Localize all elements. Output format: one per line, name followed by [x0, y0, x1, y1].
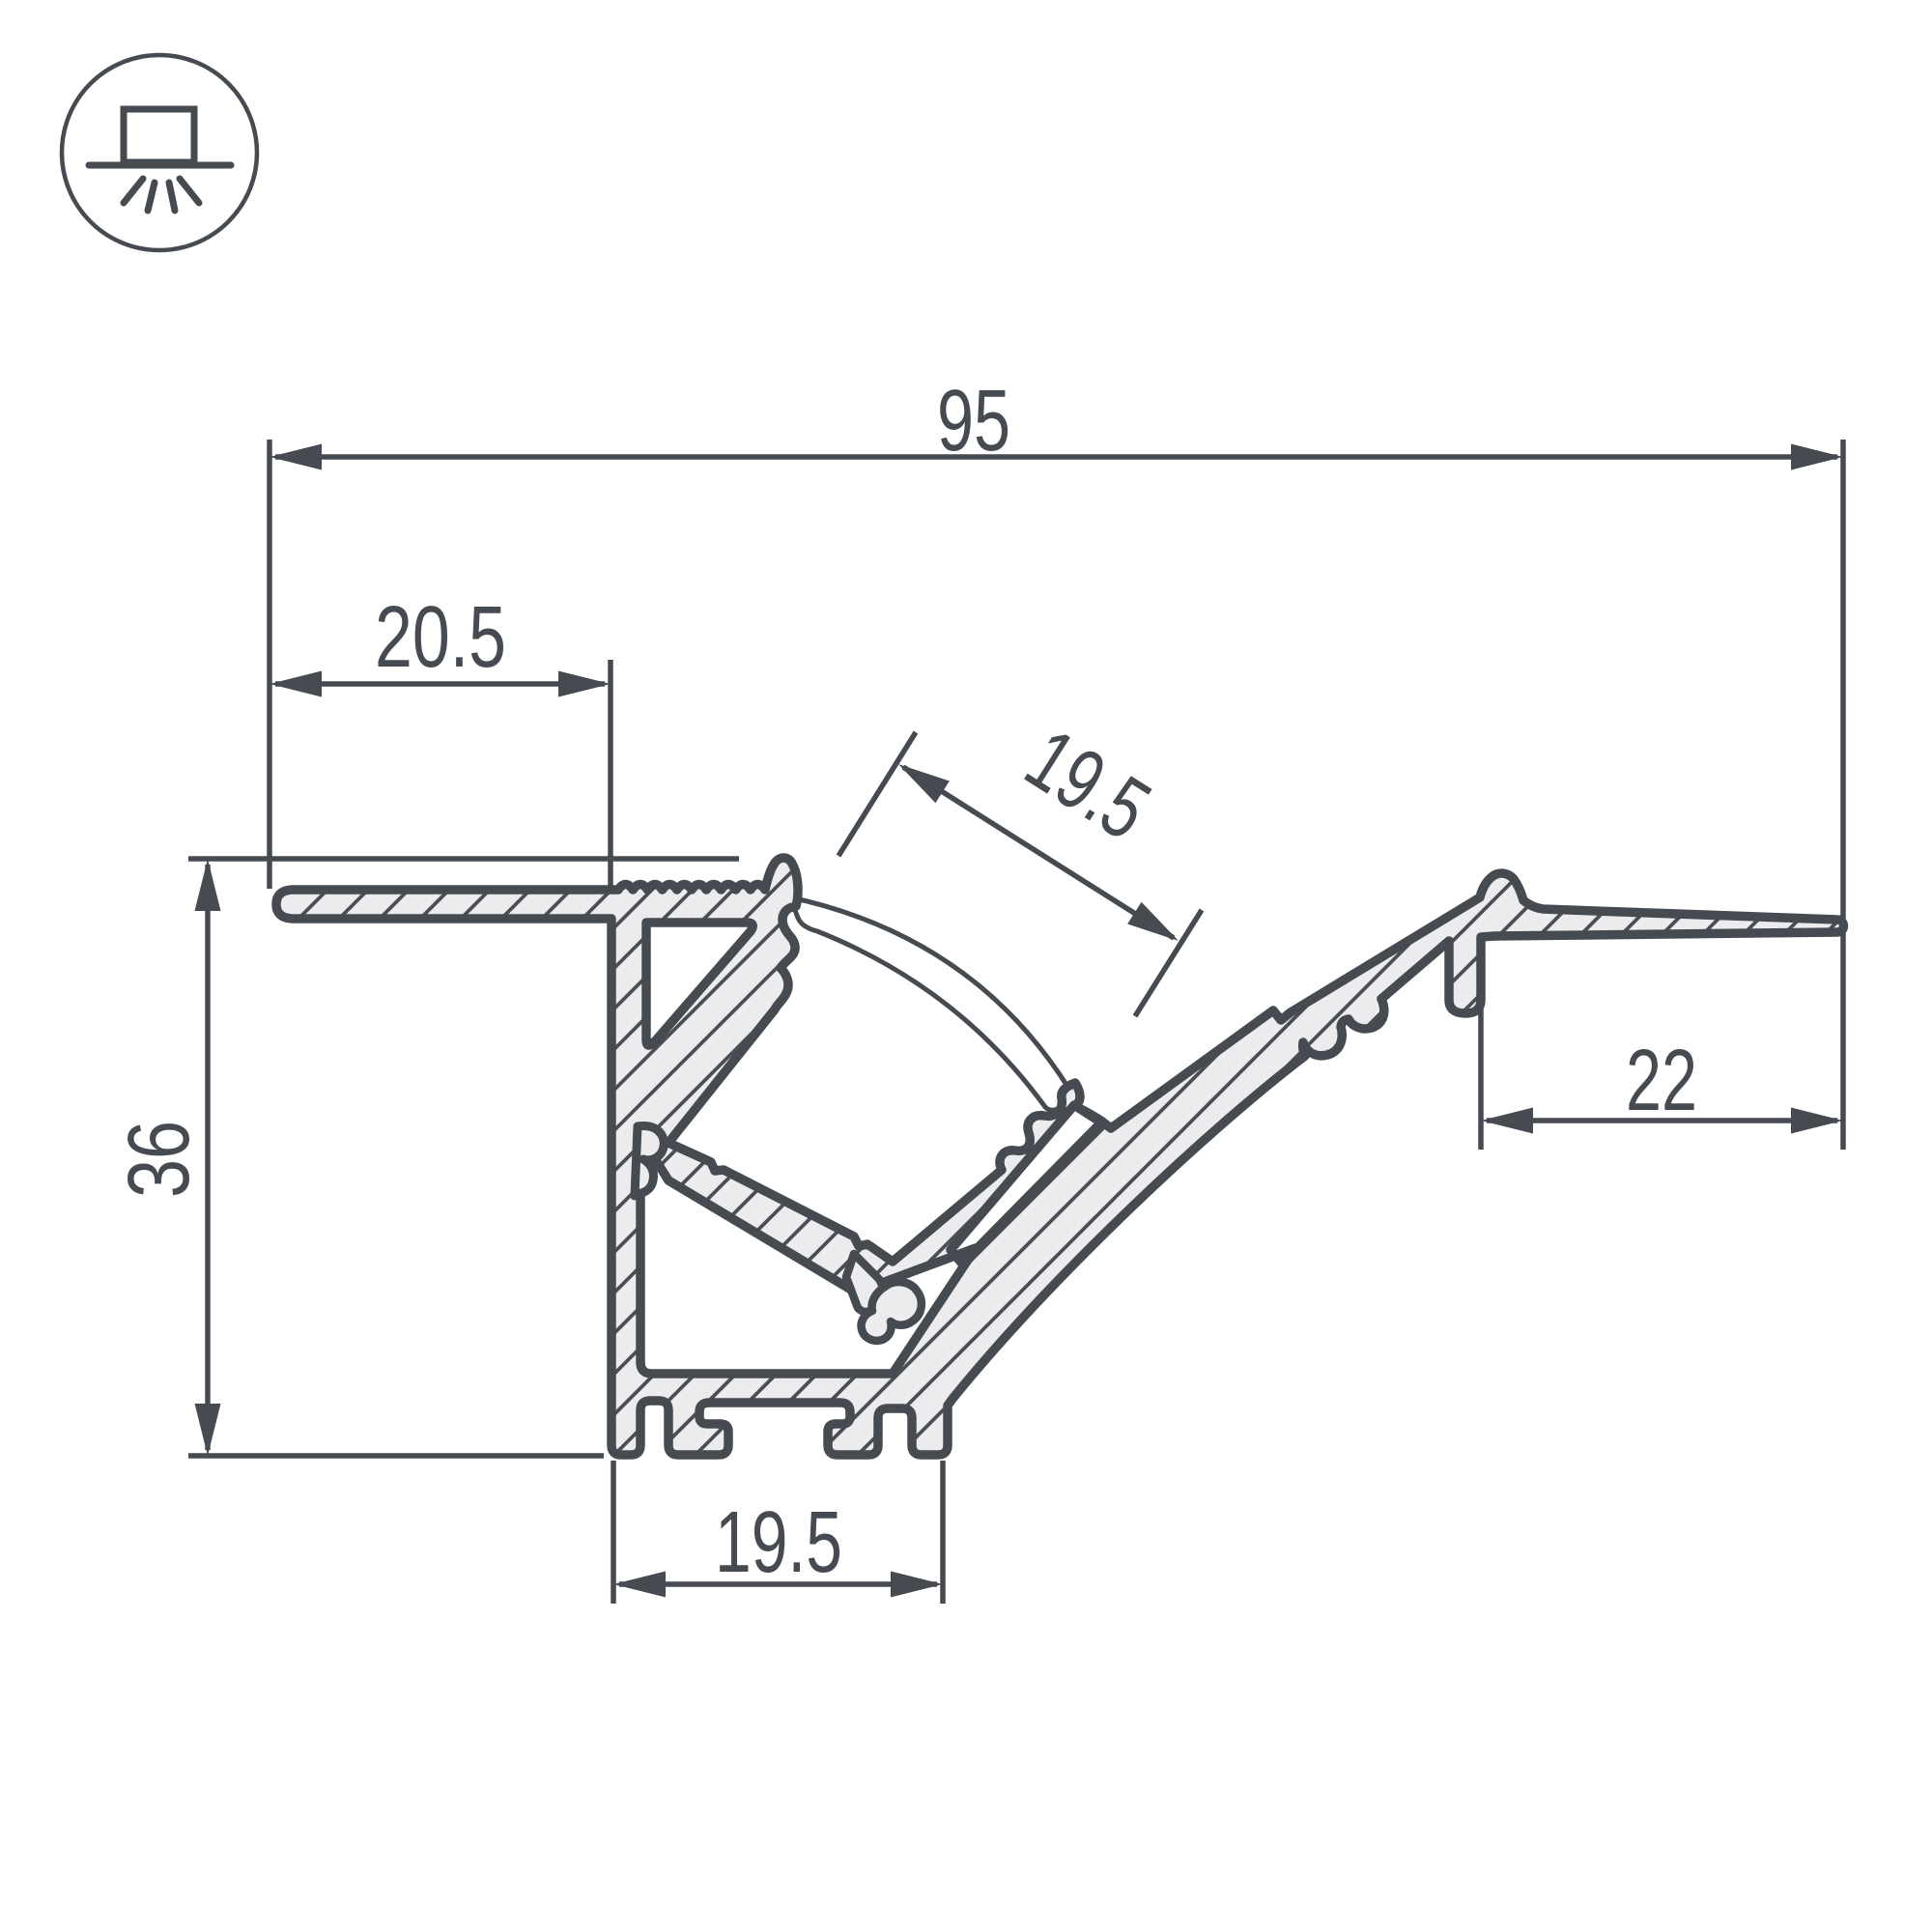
svg-text:20.5: 20.5 — [375, 589, 506, 686]
svg-text:95: 95 — [937, 373, 1010, 469]
svg-text:19.5: 19.5 — [715, 1494, 842, 1591]
svg-text:36: 36 — [111, 1121, 208, 1198]
svg-text:22: 22 — [1626, 1033, 1697, 1129]
